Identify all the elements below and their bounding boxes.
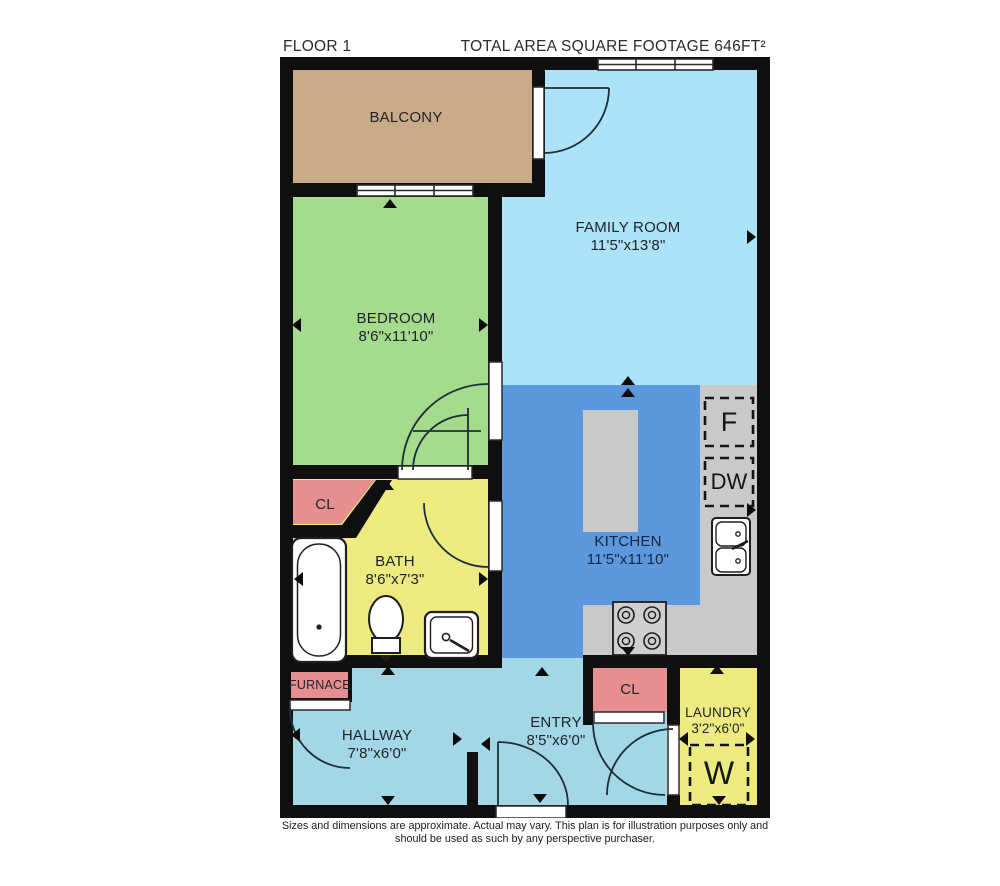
family-room-label: FAMILY ROOM 11'5"x13'8": [528, 219, 728, 254]
kitchen-label: KITCHEN 11'5"x11'10": [538, 533, 718, 568]
disclaimer: Sizes and dimensions are approximate. Ac…: [280, 820, 770, 846]
wall: [532, 57, 545, 197]
hallway-label: HALLWAY 7'8"x6'0": [287, 727, 467, 762]
floorplan-page: { "header": { "floor_label": "FLOOR 1", …: [0, 0, 1000, 886]
laundry-label: LAUNDRY 3'2"x6'0": [674, 705, 762, 737]
room-hallway-entry: [502, 658, 583, 668]
balcony-label: BALCONY: [306, 109, 506, 127]
wall: [280, 57, 293, 818]
wall: [757, 57, 770, 818]
bedroom-closet-label: CL: [295, 496, 355, 514]
bath-label: BATH 8'6"x7'3": [315, 553, 475, 588]
disclaimer-line2: should be used as such by any perspectiv…: [280, 833, 770, 846]
fridge-label: F: [705, 407, 753, 438]
bedroom-label: BEDROOM 8'6"x11'10": [296, 310, 496, 345]
furnace-label: FURNACE: [289, 677, 350, 695]
dishwasher-label: DW: [705, 469, 753, 495]
wall: [280, 805, 770, 818]
entry-label: ENTRY 8'5"x6'0": [466, 714, 646, 749]
wall: [280, 57, 770, 70]
total-area-label: TOTAL AREA SQUARE FOOTAGE 646FT²: [461, 38, 766, 56]
disclaimer-line1: Sizes and dimensions are approximate. Ac…: [280, 820, 770, 833]
wall: [667, 795, 680, 807]
wall: [467, 752, 478, 807]
entry-closet-label: CL: [598, 681, 662, 699]
room-kitchen: [502, 605, 583, 658]
wall: [280, 465, 502, 479]
kitchen-island: [583, 410, 638, 532]
wall: [280, 655, 502, 668]
kitchen-counter: [583, 605, 757, 655]
room-family: [545, 70, 757, 190]
floor-label: FLOOR 1: [283, 38, 351, 56]
wall: [488, 479, 502, 659]
washer-label: W: [690, 755, 748, 792]
wall: [280, 183, 545, 197]
floor-plan: BALCONY FAMILY ROOM 11'5"x13'8" BEDROOM …: [280, 57, 770, 818]
